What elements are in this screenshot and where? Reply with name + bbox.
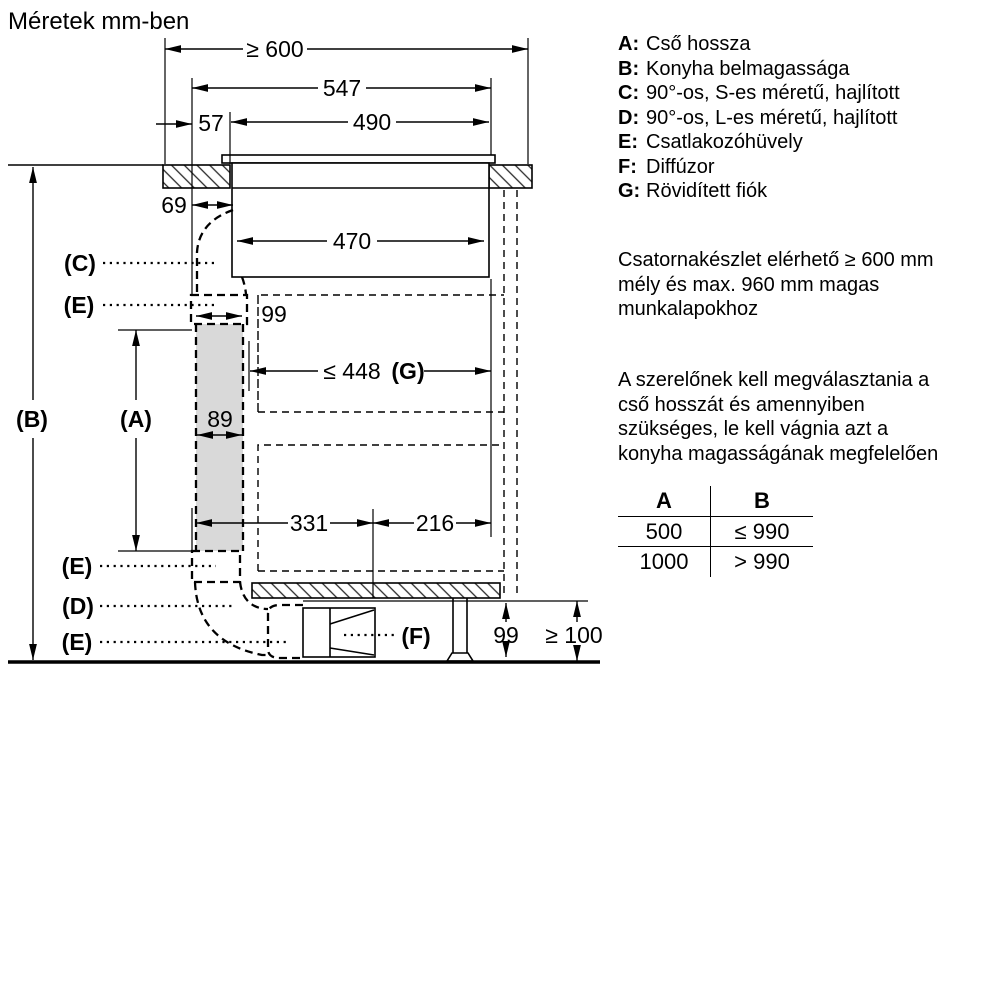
dimension-drawing: ≥ 600 547 57 490 69 470 99 ≤ 448 (G) 89 … xyxy=(0,0,620,700)
pipe-length-table: A B 500 ≤ 990 1000 > 990 xyxy=(618,486,813,577)
legend-item-f: F:Diffúzor xyxy=(618,155,1000,180)
table-cell: 1000 xyxy=(618,547,711,578)
note-line: cső hosszát és amennyiben xyxy=(618,393,963,418)
note-line: Csatornakészlet elérhető ≥ 600 mm xyxy=(618,248,963,273)
legend-label: Cső hossza xyxy=(646,33,751,55)
leg-foot xyxy=(447,653,473,661)
note-line: munkalapokhoz xyxy=(618,297,963,322)
hob-body xyxy=(232,163,489,277)
note-duct-kit: Csatornakészlet elérhető ≥ 600 mm mély é… xyxy=(618,248,963,322)
legend-key: G: xyxy=(618,179,646,204)
callout-c: (C) xyxy=(64,250,96,276)
dim-99-sleeve: 99 xyxy=(261,301,287,327)
dimension-lines xyxy=(33,49,577,661)
s-bend-inner xyxy=(242,277,246,294)
drawer-box-upper xyxy=(258,295,504,412)
s-bend-outer xyxy=(197,210,233,294)
callout-f: (F) xyxy=(401,623,430,649)
legend-key: B: xyxy=(618,57,646,82)
table-header-a: A xyxy=(618,486,711,517)
dim-69: 69 xyxy=(161,192,187,218)
table-row: 500 ≤ 990 xyxy=(618,517,813,547)
callout-b: (B) xyxy=(16,406,48,432)
dim-plinth: ≥ 100 xyxy=(545,622,602,648)
legend-item-g: G:Rövidített fiók xyxy=(618,179,1000,204)
note-line: mély és max. 960 mm magas xyxy=(618,273,963,298)
legend-label: 90°-os, S-es méretű, hajlított xyxy=(646,82,900,104)
legend-key: E: xyxy=(618,130,646,155)
dim-448-key-g: (G) xyxy=(391,358,424,384)
installation-diagram-page: Méretek mm-ben xyxy=(0,0,1000,1000)
dim-331: 331 xyxy=(290,510,328,536)
table-cell: > 990 xyxy=(711,547,814,578)
structure-lines xyxy=(8,155,600,662)
legend-key: A: xyxy=(618,32,646,57)
dim-89: 89 xyxy=(207,406,233,432)
worktop-left-section xyxy=(163,165,230,188)
dim-470: 470 xyxy=(333,228,371,254)
table-header-row: A B xyxy=(618,486,813,517)
table-header-b: B xyxy=(711,486,814,517)
callout-e3: (E) xyxy=(62,629,93,655)
legend-item-c: C:90°-os, S-es méretű, hajlított xyxy=(618,81,1000,106)
legend-key: D: xyxy=(618,106,646,131)
table-cell: 500 xyxy=(618,517,711,547)
note-installer: A szerelőnek kell megválasztania a cső h… xyxy=(618,368,963,466)
worktop-right-section xyxy=(489,165,532,188)
note-line: szükséges, le kell vágnia azt a xyxy=(618,417,963,442)
connector-sleeve-top xyxy=(191,295,247,324)
legend-item-e: E:Csatlakozóhüvely xyxy=(618,130,1000,155)
connector-sleeve-bottom xyxy=(268,605,303,658)
legend-item-d: D:90°-os, L-es méretű, hajlított xyxy=(618,106,1000,131)
legend-key: F: xyxy=(618,155,646,180)
legend-label: Csatlakozóhüvely xyxy=(646,131,803,153)
duct-pipe-fill xyxy=(196,324,243,551)
legend-key: C: xyxy=(618,81,646,106)
dim-490: 490 xyxy=(353,109,391,135)
dim-worktop-depth: ≥ 600 xyxy=(246,36,303,62)
legend-item-b: B:Konyha belmagassága xyxy=(618,57,1000,82)
table-row: 1000 > 990 xyxy=(618,547,813,578)
callout-e2: (E) xyxy=(62,553,93,579)
dim-99-diffuser: 99 xyxy=(493,622,519,648)
legend-label: 90°-os, L-es méretű, hajlított xyxy=(646,107,897,129)
legend-item-a: A:Cső hossza xyxy=(618,32,1000,57)
dim-547: 547 xyxy=(323,75,361,101)
hob-glass-top xyxy=(222,155,495,163)
dim-448: ≤ 448 xyxy=(323,358,380,384)
legend-label: Rövidített fiók xyxy=(646,180,767,202)
callout-d: (D) xyxy=(62,593,94,619)
dim-57: 57 xyxy=(198,110,224,136)
cabinet-bottom-shelf xyxy=(252,583,500,598)
legend-label: Diffúzor xyxy=(646,156,715,178)
drawer-box-lower xyxy=(258,445,504,571)
note-line: konyha magasságának megfelelően xyxy=(618,442,963,467)
note-line: A szerelőnek kell megválasztania a xyxy=(618,368,963,393)
dim-216: 216 xyxy=(416,510,454,536)
callout-e1: (E) xyxy=(64,292,95,318)
callout-a: (A) xyxy=(120,406,152,432)
legend-label: Konyha belmagassága xyxy=(646,58,849,80)
legend-list: A:Cső hossza B:Konyha belmagassága C:90°… xyxy=(618,32,1000,204)
table-cell: ≤ 990 xyxy=(711,517,814,547)
